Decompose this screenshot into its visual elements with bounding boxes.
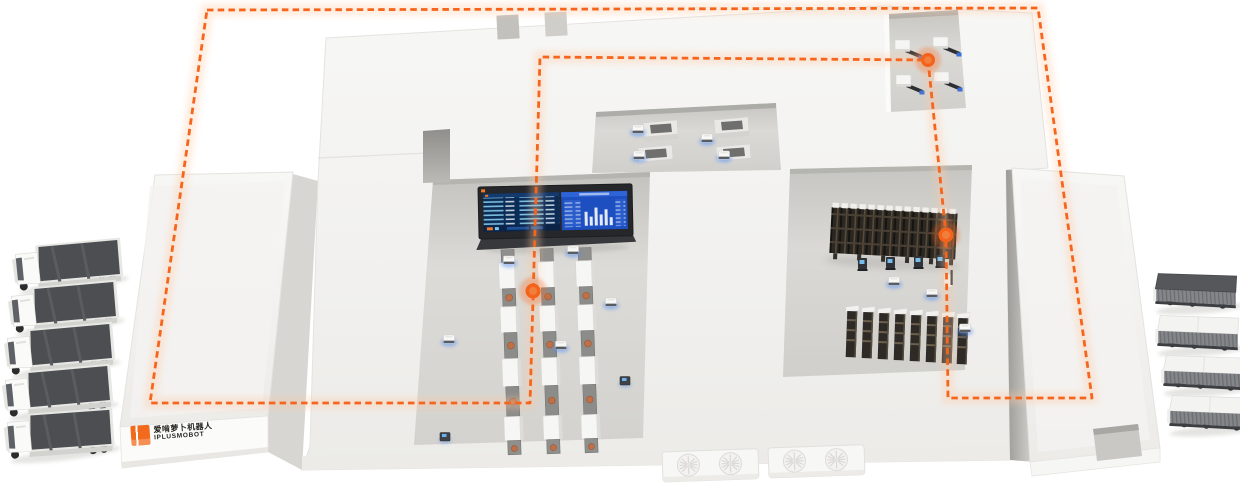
waypoint-production xyxy=(519,277,547,305)
agv-docked-4 xyxy=(716,151,732,163)
workstation-2 xyxy=(714,117,749,139)
factory-illustration xyxy=(0,0,1240,488)
truck-right-4 xyxy=(1165,390,1240,439)
agv-dark-1 xyxy=(619,377,632,388)
truck-right-1 xyxy=(1151,268,1240,317)
production-lines xyxy=(498,247,601,455)
agv-roaming-5 xyxy=(553,341,569,353)
workstation-1 xyxy=(643,120,678,142)
company-logo-text: 爱啃萝卜机器人 IPLUSMOBOT xyxy=(153,423,213,442)
smart-factory-scene: 爱啃萝卜机器人 IPLUSMOBOT xyxy=(0,0,1240,488)
agv-docked-2 xyxy=(699,134,715,146)
truck-right-3 xyxy=(1159,350,1240,399)
outbound-truck-fleet xyxy=(1151,268,1240,439)
inbound-truck-fleet xyxy=(0,233,129,467)
agv-docked-1 xyxy=(630,125,646,137)
company-logo-mark-icon xyxy=(130,425,150,446)
control-dashboard xyxy=(475,184,636,255)
truck-right-2 xyxy=(1153,310,1240,359)
agv-roaming-3 xyxy=(565,246,581,258)
agv-roaming-7 xyxy=(924,289,940,301)
agv-docked-3 xyxy=(631,151,647,163)
agv-roaming-1 xyxy=(441,335,457,347)
charging-dock-1 xyxy=(858,258,868,271)
charging-dock-2 xyxy=(886,257,896,270)
roof-vent-2 xyxy=(544,11,567,36)
dashboard-screen-left xyxy=(483,192,560,232)
vent-block-1 xyxy=(662,449,759,482)
agv-roaming-2 xyxy=(501,256,517,268)
waypoint-machining xyxy=(915,47,941,73)
truck-left-5 xyxy=(2,403,120,467)
waypoint-storage xyxy=(932,221,960,249)
roof-vent-1 xyxy=(496,14,519,39)
agv-roaming-4 xyxy=(603,298,619,310)
agv-dark-2 xyxy=(439,433,452,444)
vent-block-2 xyxy=(768,445,865,478)
dashboard-logo-dot xyxy=(481,189,485,192)
dashboard-screen-right xyxy=(561,191,628,230)
agv-roaming-8 xyxy=(957,324,973,336)
doorway-opening xyxy=(423,129,450,183)
agv-roaming-6 xyxy=(886,277,902,289)
charging-dock-3 xyxy=(914,256,924,269)
